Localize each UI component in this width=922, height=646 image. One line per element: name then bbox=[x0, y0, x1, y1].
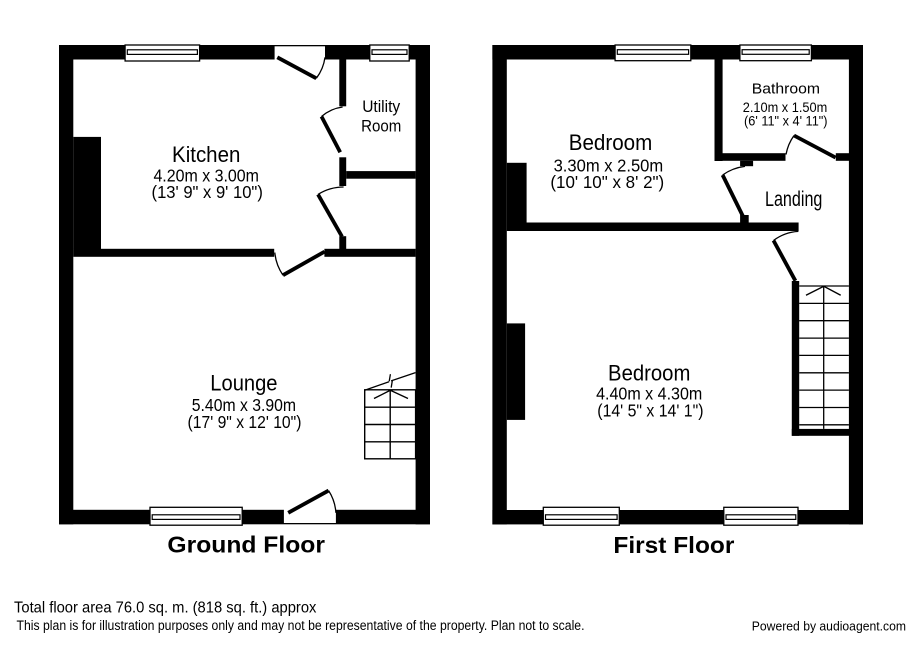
svg-text:Total floor area 76.0 sq. m. (: Total floor area 76.0 sq. m. (818 sq. ft… bbox=[14, 600, 316, 617]
svg-text:This plan is for illustration: This plan is for illustration purposes o… bbox=[17, 618, 585, 633]
svg-text:(13' 9" x 9' 10"): (13' 9" x 9' 10") bbox=[152, 182, 263, 202]
svg-text:Landing: Landing bbox=[765, 187, 822, 211]
svg-text:Bedroom: Bedroom bbox=[569, 130, 653, 155]
svg-text:(6' 11" x 4' 11"): (6' 11" x 4' 11") bbox=[744, 114, 828, 130]
svg-text:Bedroom: Bedroom bbox=[608, 361, 690, 386]
svg-text:Utility: Utility bbox=[362, 98, 401, 116]
svg-text:Kitchen: Kitchen bbox=[172, 142, 240, 167]
svg-text:First Floor: First Floor bbox=[613, 532, 734, 558]
svg-text:Powered by audioagent.com: Powered by audioagent.com bbox=[752, 618, 906, 633]
svg-text:Room: Room bbox=[361, 118, 401, 136]
svg-text:Ground Floor: Ground Floor bbox=[167, 531, 325, 557]
svg-text:Lounge: Lounge bbox=[210, 370, 277, 395]
svg-text:(10' 10" x 8' 2"): (10' 10" x 8' 2") bbox=[550, 172, 664, 192]
svg-text:(17' 9" x 12' 10"): (17' 9" x 12' 10") bbox=[188, 412, 302, 432]
svg-text:Bathroom: Bathroom bbox=[752, 82, 820, 98]
svg-text:(14' 5" x 14' 1"): (14' 5" x 14' 1") bbox=[597, 400, 703, 420]
